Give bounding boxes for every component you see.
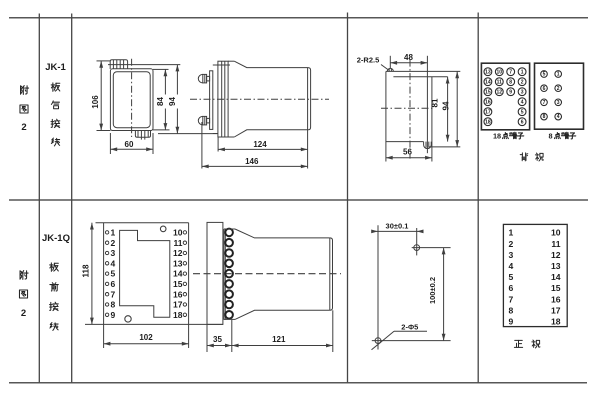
svg-text:8: 8 [509, 305, 514, 315]
svg-text:13: 13 [485, 70, 491, 76]
svg-text:10: 10 [497, 70, 503, 76]
svg-text:2: 2 [21, 122, 26, 133]
svg-text:3: 3 [557, 100, 560, 106]
svg-text:17: 17 [551, 305, 561, 315]
svg-text:18: 18 [173, 310, 183, 320]
svg-text:5: 5 [509, 272, 514, 282]
svg-text:11: 11 [174, 238, 183, 248]
svg-text:12: 12 [173, 248, 183, 258]
svg-text:146: 146 [245, 157, 259, 166]
svg-text:7: 7 [509, 70, 512, 76]
svg-text:8: 8 [509, 80, 512, 86]
svg-text:2: 2 [111, 238, 116, 248]
svg-text:2-Φ5: 2-Φ5 [401, 322, 418, 331]
svg-text:2: 2 [21, 308, 26, 319]
svg-text:48: 48 [404, 53, 413, 62]
svg-text:2: 2 [509, 239, 514, 249]
svg-text:7: 7 [111, 289, 116, 299]
svg-text:15: 15 [173, 279, 183, 289]
svg-text:9: 9 [509, 90, 512, 96]
svg-text:6: 6 [543, 86, 546, 92]
svg-text:JK-1Q: JK-1Q [42, 233, 70, 244]
svg-text:6: 6 [521, 120, 524, 126]
svg-text:4: 4 [509, 261, 514, 271]
svg-text:2: 2 [557, 86, 560, 92]
svg-text:17: 17 [173, 300, 183, 310]
svg-text:15: 15 [485, 90, 491, 96]
svg-text:1: 1 [509, 228, 514, 238]
svg-text:106: 106 [91, 95, 100, 109]
svg-text:5: 5 [111, 269, 116, 279]
svg-text:124: 124 [253, 140, 267, 149]
svg-text:1: 1 [111, 228, 116, 238]
svg-text:2-R2.5: 2-R2.5 [357, 56, 380, 65]
svg-text:14: 14 [173, 269, 183, 279]
svg-text:9: 9 [509, 317, 514, 327]
svg-text:94: 94 [168, 97, 177, 106]
svg-text:11: 11 [551, 239, 560, 249]
svg-text:16: 16 [173, 289, 183, 299]
svg-text:8: 8 [548, 131, 552, 140]
svg-text:18: 18 [551, 317, 561, 327]
svg-text:8: 8 [111, 300, 116, 310]
svg-text:9: 9 [111, 310, 116, 320]
svg-text:18: 18 [485, 120, 491, 126]
svg-text:81: 81 [431, 98, 440, 107]
svg-text:121: 121 [272, 335, 286, 344]
svg-text:18: 18 [493, 131, 501, 140]
svg-text:5: 5 [521, 110, 524, 116]
svg-text:8: 8 [543, 114, 546, 120]
svg-text:35: 35 [213, 335, 222, 344]
svg-text:2: 2 [521, 80, 524, 86]
svg-text:4: 4 [521, 100, 524, 106]
svg-text:100±0.2: 100±0.2 [428, 277, 437, 304]
svg-text:13: 13 [173, 258, 183, 268]
svg-text:60: 60 [125, 140, 134, 149]
svg-text:6: 6 [111, 279, 116, 289]
svg-text:15: 15 [551, 283, 561, 293]
svg-text:102: 102 [139, 333, 153, 342]
svg-text:30±0.1: 30±0.1 [386, 221, 409, 230]
svg-text:5: 5 [543, 72, 546, 78]
svg-text:3: 3 [509, 250, 514, 260]
svg-text:17: 17 [485, 110, 491, 116]
svg-text:14: 14 [551, 272, 561, 282]
svg-text:7: 7 [509, 294, 514, 304]
svg-text:10: 10 [173, 228, 183, 238]
svg-text:11: 11 [497, 80, 503, 86]
svg-text:1: 1 [557, 72, 560, 78]
svg-text:4: 4 [557, 114, 560, 120]
svg-text:JK-1: JK-1 [45, 62, 66, 73]
svg-text:56: 56 [403, 148, 412, 157]
svg-text:14: 14 [485, 80, 491, 86]
svg-text:7: 7 [543, 100, 546, 106]
svg-text:6: 6 [509, 283, 514, 293]
svg-text:12: 12 [497, 90, 503, 96]
svg-text:1: 1 [521, 70, 524, 76]
svg-text:3: 3 [521, 90, 524, 96]
svg-text:16: 16 [485, 100, 491, 106]
svg-text:12: 12 [551, 250, 561, 260]
svg-text:94: 94 [442, 101, 451, 110]
svg-text:4: 4 [111, 258, 116, 268]
svg-text:16: 16 [551, 294, 561, 304]
svg-text:10: 10 [551, 228, 561, 238]
svg-text:118: 118 [81, 264, 90, 277]
svg-text:3: 3 [111, 248, 116, 258]
svg-text:84: 84 [156, 97, 165, 106]
svg-text:13: 13 [551, 261, 561, 271]
